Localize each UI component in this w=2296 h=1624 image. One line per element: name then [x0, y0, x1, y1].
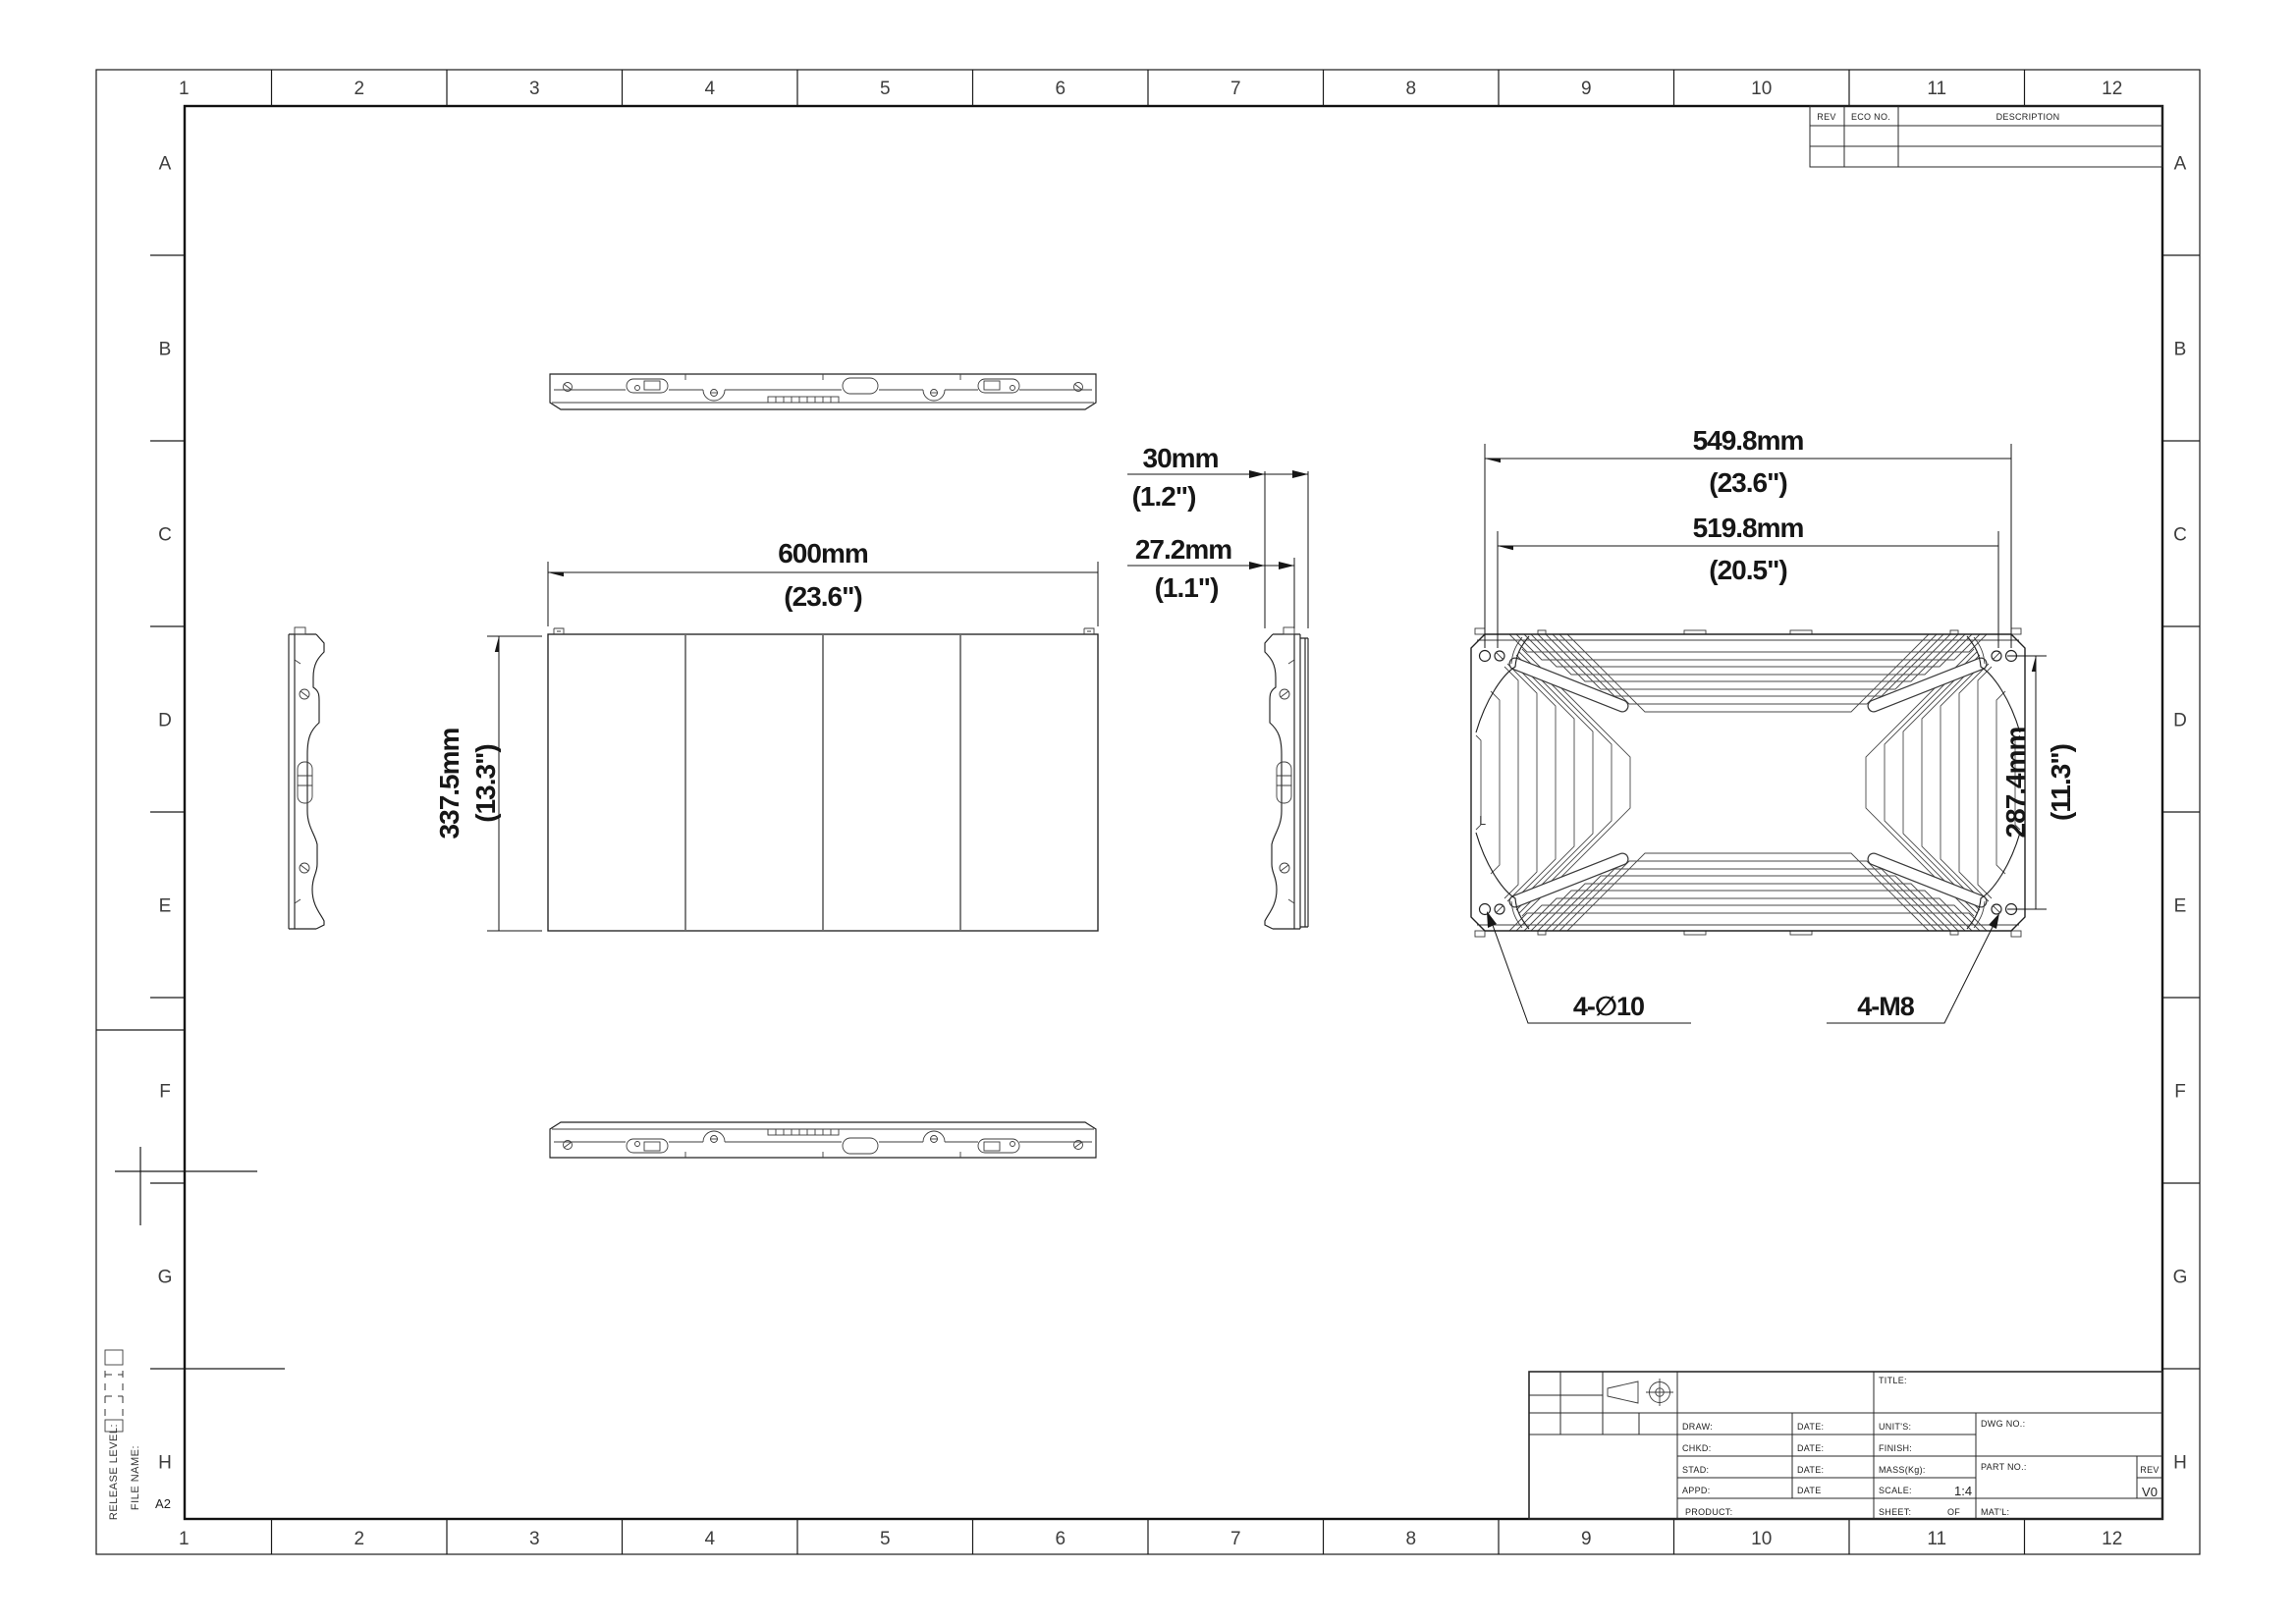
grid-row-labels-right: ABCDEFGH	[2173, 154, 2188, 1474]
grid-label: E	[2174, 896, 2187, 917]
depth-panel-mm: 27.2mm	[1135, 534, 1231, 565]
threaded-holes-text: 4-M8	[1857, 992, 1914, 1021]
dwg-no-label: DWG NO.:	[1981, 1419, 2025, 1429]
grid-label: D	[158, 711, 172, 731]
release-level-label: RELEASE LEVEL:	[108, 1424, 120, 1520]
clearance-holes-text: 4-∅10	[1573, 992, 1644, 1021]
depth-total-mm: 30mm	[1143, 443, 1219, 473]
grid-column-labels-bottom: 123456789101112	[179, 1529, 2122, 1549]
side-view-middle-flange	[1300, 638, 1308, 927]
finish-label: FINISH:	[1879, 1443, 1912, 1453]
grid-label: G	[2173, 1268, 2188, 1288]
rear-height-mm: 287.4mm	[2000, 727, 2031, 838]
grid-label: 10	[1751, 79, 1772, 99]
part-no-label: PART NO.:	[1981, 1462, 2027, 1472]
front-height-mm: 337.5mm	[434, 728, 465, 839]
grid-label: 5	[880, 79, 891, 99]
front-height-in: (13.3")	[470, 744, 501, 822]
grid-label: F	[159, 1082, 171, 1103]
revision-table: REV ECO NO. DESCRIPTION	[1810, 106, 2162, 167]
dim-rear-width-inner: 519.8mm (20.5")	[1498, 513, 1998, 648]
depth-total-in: (1.2")	[1132, 481, 1196, 512]
scale-value: 1:4	[1954, 1484, 1972, 1498]
grid-label: 8	[1405, 79, 1416, 99]
rev-value: V0	[2142, 1485, 2158, 1499]
sheet-label: SHEET:	[1879, 1507, 1911, 1517]
grid-label: 8	[1405, 1529, 1416, 1549]
grid-label: A	[159, 154, 172, 175]
centering-marks	[115, 1147, 257, 1225]
of-label: OF	[1947, 1507, 1960, 1517]
grid-row-labels-left: ABCDEFGH	[158, 154, 173, 1474]
date1-label: DATE:	[1797, 1422, 1824, 1432]
grid-label: 6	[1055, 79, 1066, 99]
grid-label: 10	[1751, 1529, 1772, 1549]
grid-label: 2	[354, 1529, 364, 1549]
grid-label: 1	[179, 79, 190, 99]
draw-label: DRAW:	[1682, 1422, 1713, 1432]
grid-label: 4	[704, 1529, 715, 1549]
grid-label: 12	[2102, 1529, 2122, 1549]
grid-label: 6	[1055, 1529, 1066, 1549]
description-header: DESCRIPTION	[1996, 112, 2060, 122]
bottom-view	[550, 1122, 1096, 1158]
units-label: UNIT'S:	[1879, 1422, 1911, 1432]
matl-label: MAT'L:	[1981, 1507, 2009, 1517]
side-view-middle	[1265, 627, 1300, 929]
rear-width-inner-mm: 519.8mm	[1693, 513, 1804, 543]
date4-label: DATE	[1797, 1486, 1822, 1495]
grid-label: 9	[1581, 1529, 1592, 1549]
rear-width-outer-mm: 549.8mm	[1693, 425, 1804, 456]
grid-label: D	[2173, 711, 2187, 731]
eco-no-header: ECO NO.	[1851, 112, 1890, 122]
grid-label: B	[159, 340, 172, 360]
rev-label: REV	[2140, 1465, 2159, 1475]
release-level-block: RELEASE LEVEL: FILE NAME: A2	[105, 1350, 171, 1520]
projection-symbol-icon	[1608, 1379, 1673, 1406]
grid-label: B	[2174, 340, 2187, 360]
dim-front-height: 337.5mm (13.3")	[434, 636, 542, 931]
orientation-label: L	[1479, 814, 1486, 828]
file-name-label: FILE NAME:	[130, 1445, 141, 1510]
grid-label: 11	[1927, 1529, 1946, 1549]
date3-label: DATE:	[1797, 1465, 1824, 1475]
callout-clearance-holes: 4-∅10	[1487, 911, 1691, 1023]
dim-depth-panel: 27.2mm (1.1")	[1127, 534, 1294, 628]
grid-label: 4	[704, 79, 715, 99]
grid-label: 7	[1230, 79, 1241, 99]
title-block: TITLE: DRAW: DATE: UNIT'S: DWG NO.: CHKD…	[1529, 1372, 2162, 1519]
appd-label: APPD:	[1682, 1486, 1711, 1495]
grid-label: 11	[1927, 79, 1946, 99]
rev-header: REV	[1817, 112, 1835, 122]
scale-label: SCALE:	[1879, 1486, 1912, 1495]
cad-drawing-canvas: 123456789101112 123456789101112 ABCDEFGH…	[0, 0, 2296, 1624]
sheet-size-label: A2	[155, 1496, 171, 1511]
grid-label: 2	[354, 79, 364, 99]
product-label: PRODUCT:	[1685, 1507, 1732, 1517]
rear-width-inner-in: (20.5")	[1709, 555, 1786, 585]
callout-threaded-holes: 4-M8	[1827, 913, 1999, 1023]
grid-label: F	[2174, 1082, 2186, 1103]
rear-height-in: (11.3")	[2046, 744, 2076, 821]
grid-label: A	[2174, 154, 2187, 175]
front-width-in: (23.6")	[784, 581, 861, 612]
grid-column-labels-top: 123456789101112	[179, 79, 2122, 99]
dim-front-width: 600mm (23.6")	[548, 538, 1098, 626]
grid-label: 1	[179, 1529, 190, 1549]
top-view	[550, 374, 1096, 409]
grid-label: 5	[880, 1529, 891, 1549]
stad-label: STAD:	[1682, 1465, 1709, 1475]
grid-label: H	[2173, 1453, 2187, 1474]
date2-label: DATE:	[1797, 1443, 1824, 1453]
depth-panel-in: (1.1")	[1155, 572, 1219, 603]
grid-label: C	[2173, 525, 2187, 546]
grid-label: 3	[529, 1529, 540, 1549]
chkd-label: CHKD:	[1682, 1443, 1712, 1453]
front-width-mm: 600mm	[778, 538, 868, 568]
grid-label: 7	[1230, 1529, 1241, 1549]
grid-label: G	[158, 1268, 173, 1288]
grid-label: 9	[1581, 79, 1592, 99]
rear-width-outer-in: (23.6")	[1709, 467, 1786, 498]
grid-label: C	[158, 525, 172, 546]
mass-label: MASS(Kg):	[1879, 1465, 1926, 1475]
rear-view: L	[1471, 628, 2025, 937]
grid-label: 12	[2102, 79, 2122, 99]
grid-label: 3	[529, 79, 540, 99]
front-view	[548, 628, 1098, 931]
title-label: TITLE:	[1879, 1376, 1907, 1385]
grid-label: E	[159, 896, 172, 917]
dim-rear-height: 287.4mm (11.3")	[2000, 656, 2076, 909]
side-view-left	[289, 627, 324, 929]
grid-label: H	[158, 1453, 172, 1474]
drawing-sheet: 123456789101112 123456789101112 ABCDEFGH…	[0, 0, 2296, 1624]
